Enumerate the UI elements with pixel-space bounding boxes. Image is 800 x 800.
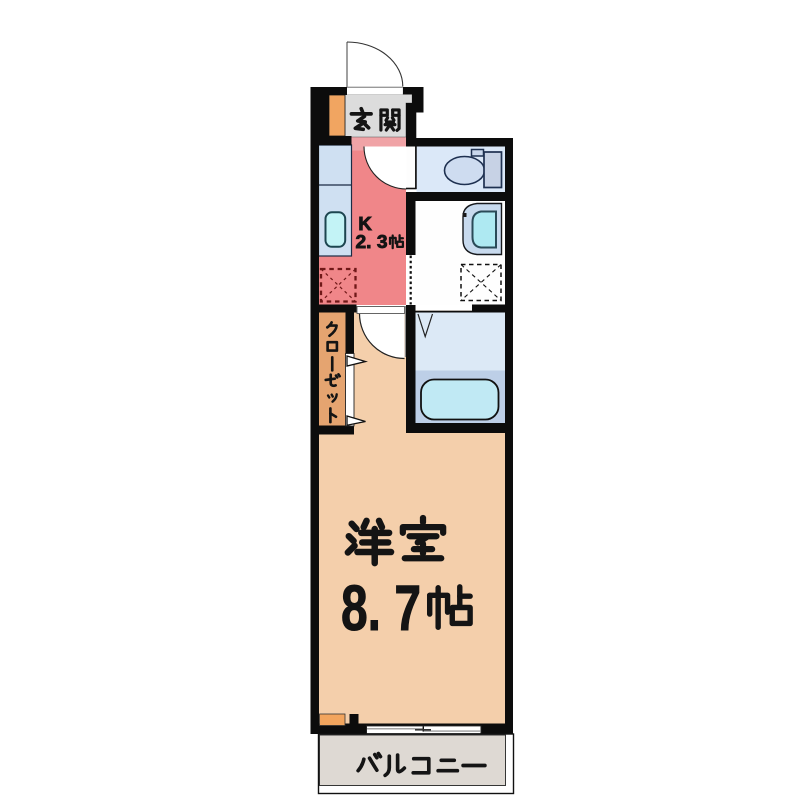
svg-text:8. 7: 8. 7 bbox=[341, 572, 421, 644]
svg-text:2. 3: 2. 3 bbox=[356, 231, 388, 252]
